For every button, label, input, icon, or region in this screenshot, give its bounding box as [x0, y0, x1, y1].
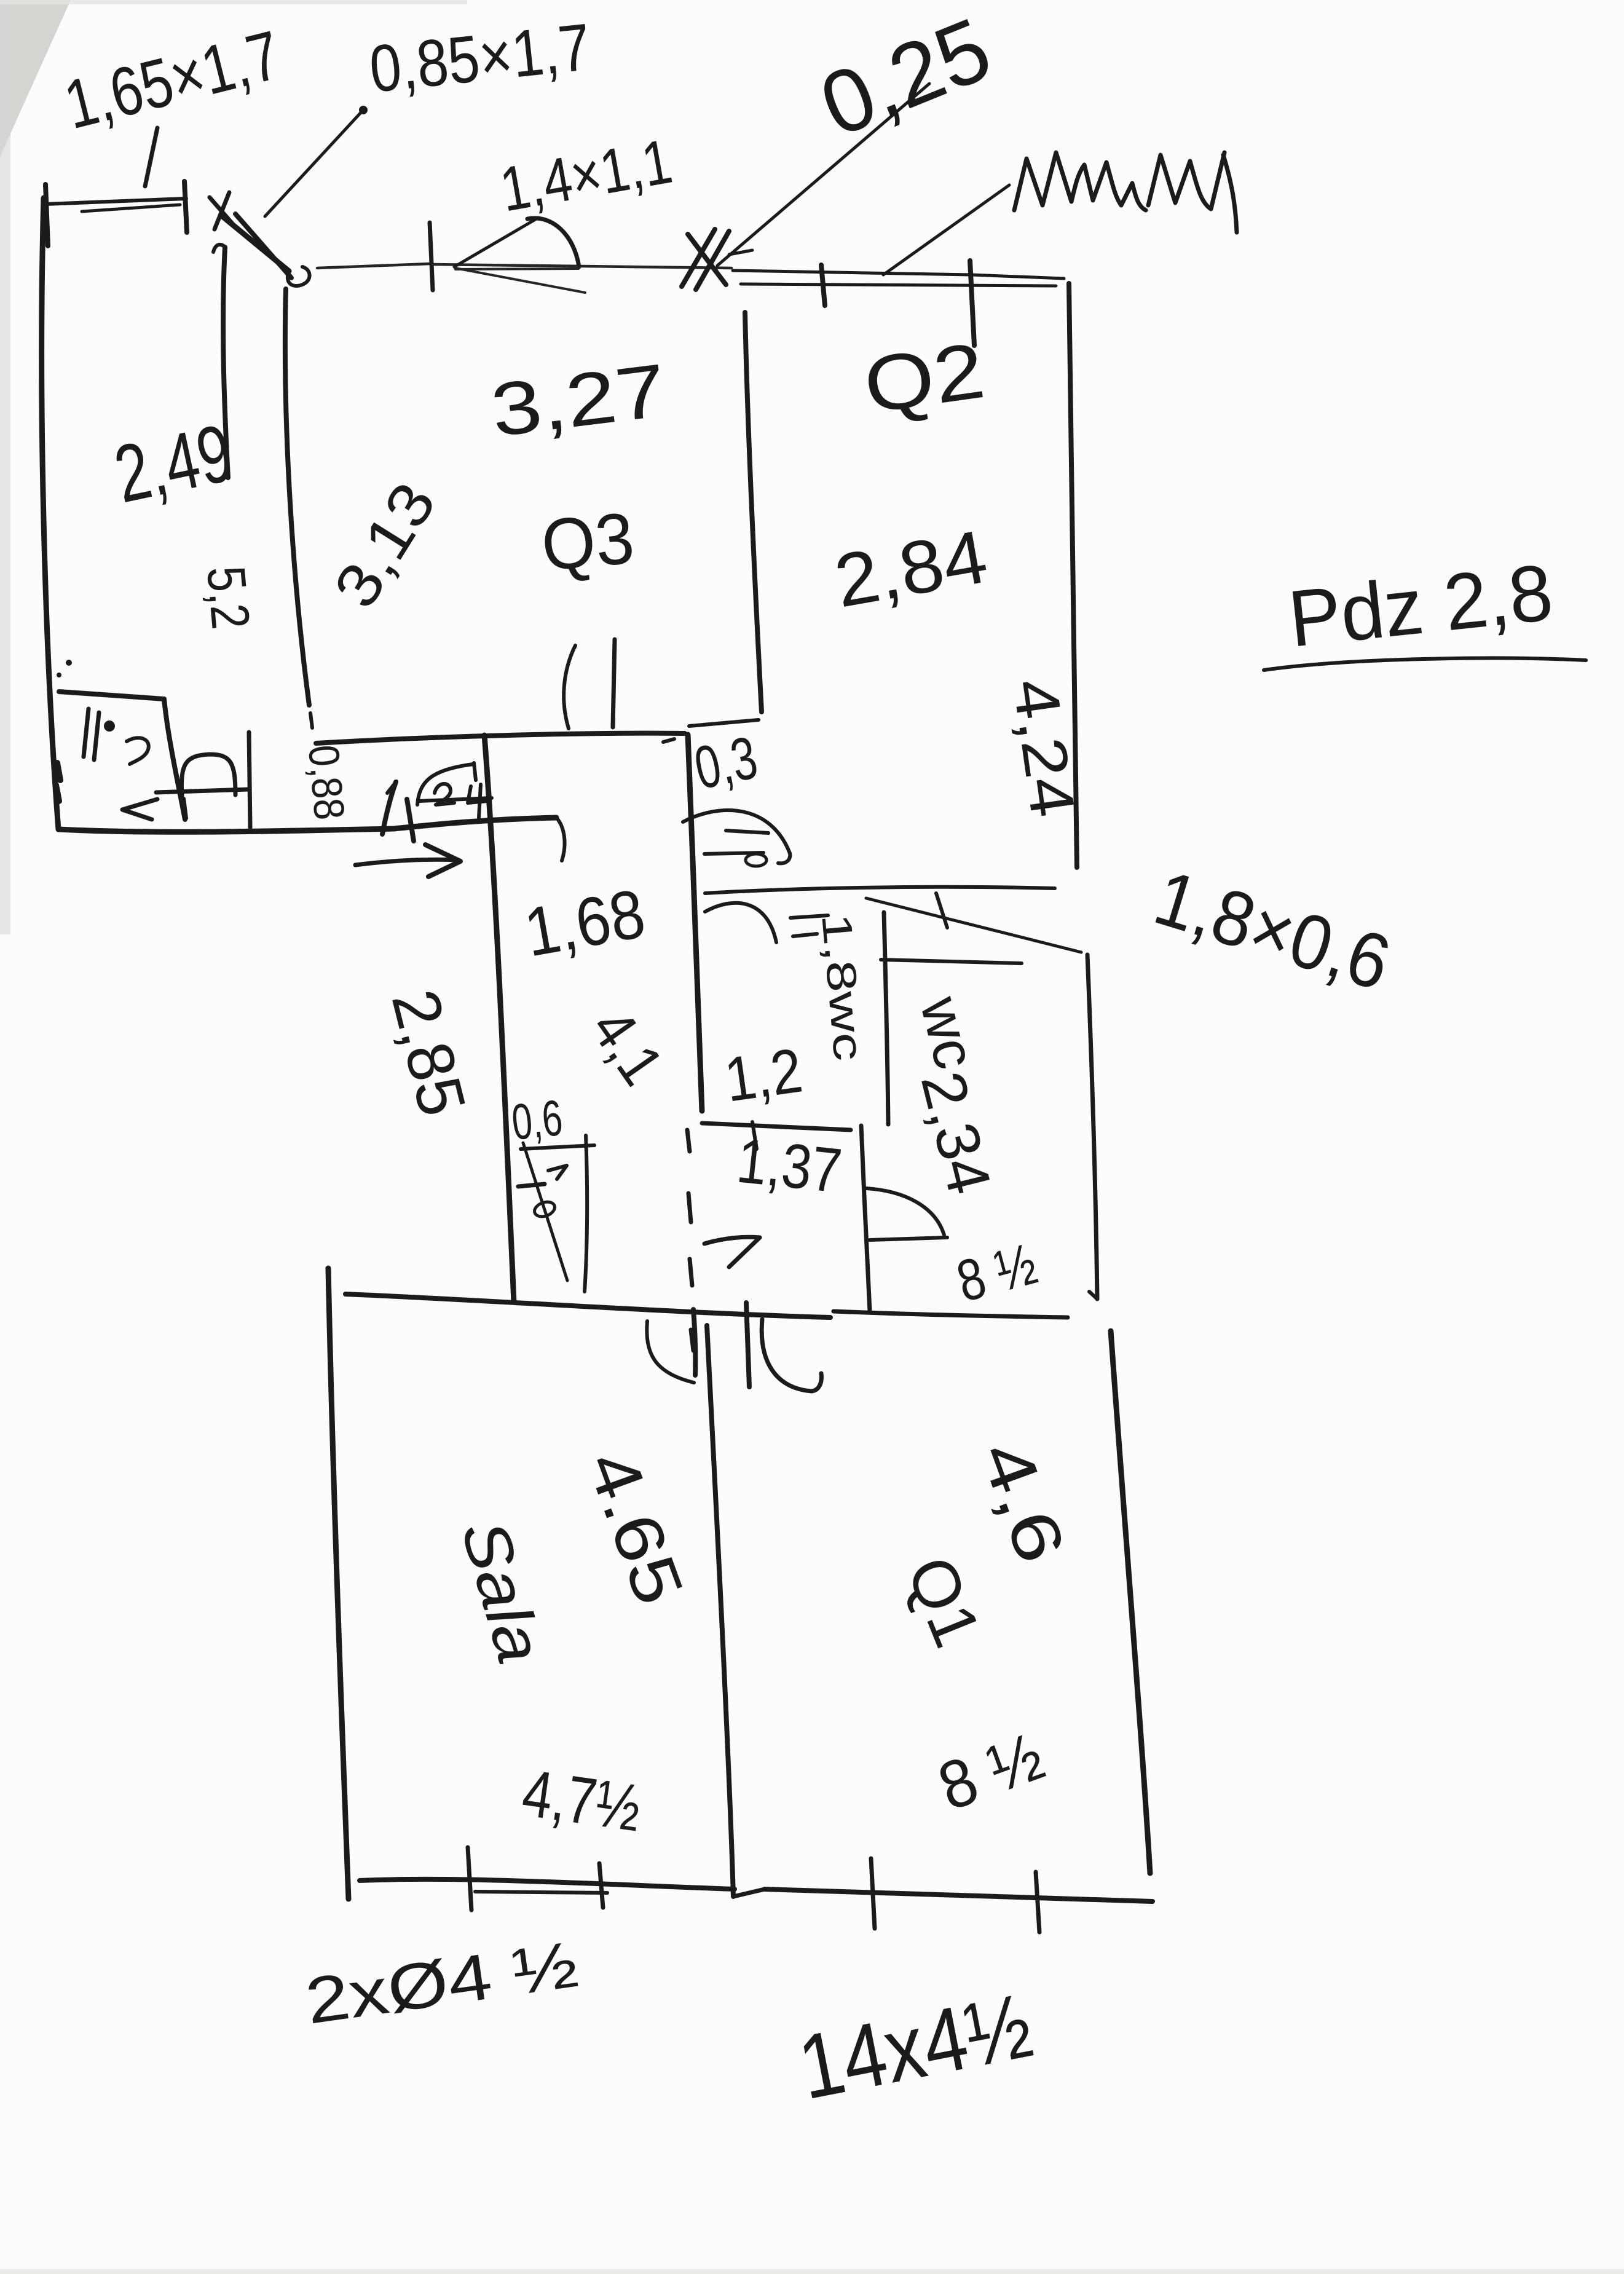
svg-text:Q3: Q3 [538, 497, 637, 586]
svg-text:1,2: 1,2 [720, 1035, 806, 1115]
svg-text:5,2: 5,2 [195, 564, 262, 631]
svg-text:1,37: 1,37 [734, 1126, 845, 1206]
svg-text:0,88: 0,88 [299, 743, 353, 822]
svg-text:0,6: 0,6 [509, 1090, 565, 1151]
svg-text:Q2: Q2 [859, 326, 990, 430]
